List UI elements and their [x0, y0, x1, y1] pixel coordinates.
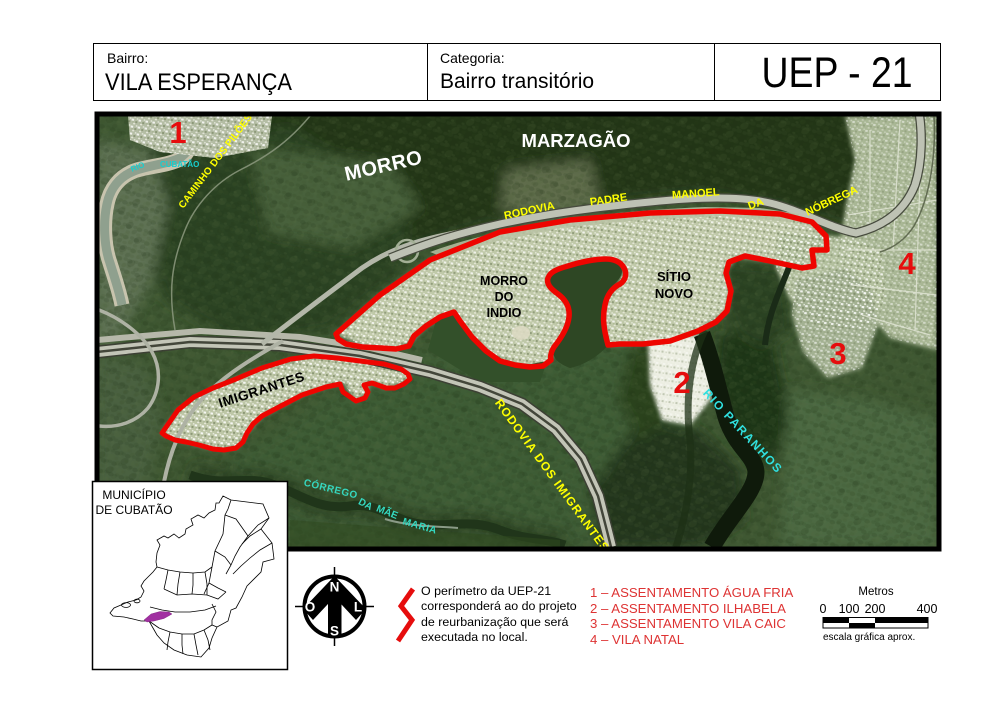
svg-text:escala gráfica aprox.: escala gráfica aprox.	[823, 632, 915, 643]
svg-text:100: 100	[839, 602, 860, 616]
svg-text:DE CUBATÃO: DE CUBATÃO	[95, 503, 172, 517]
svg-text:L: L	[354, 600, 362, 615]
svg-text:MUNICÍPIO: MUNICÍPIO	[102, 487, 165, 502]
svg-text:N: N	[330, 580, 340, 595]
svg-text:200: 200	[865, 602, 886, 616]
svg-text:400: 400	[917, 602, 938, 616]
svg-text:O: O	[305, 600, 316, 615]
svg-text:S: S	[330, 624, 339, 639]
svg-text:0: 0	[820, 602, 827, 616]
svg-text:Metros: Metros	[858, 586, 893, 598]
